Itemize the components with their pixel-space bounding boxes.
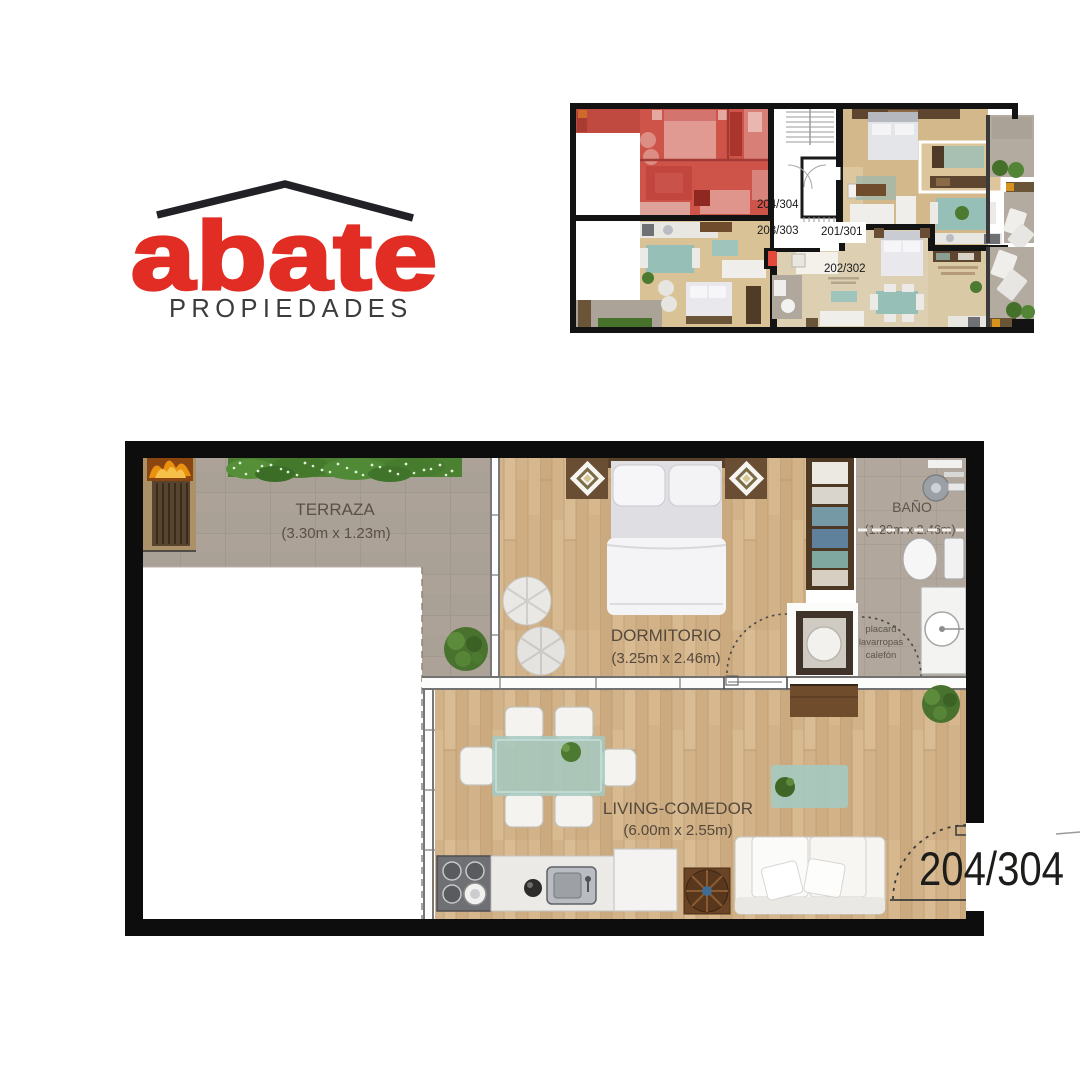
svg-text:(3.30m x 1.23m): (3.30m x 1.23m) [281, 525, 390, 542]
svg-text:(3.25m x 2.46m): (3.25m x 2.46m) [611, 650, 720, 667]
svg-text:calefón: calefón [866, 650, 897, 661]
svg-text:DORMITORIO: DORMITORIO [611, 626, 721, 645]
svg-text:202/302: 202/302 [824, 263, 866, 275]
svg-text:LIVING-COMEDOR: LIVING-COMEDOR [603, 799, 753, 818]
svg-text:(6.00m x 2.55m): (6.00m x 2.55m) [623, 822, 732, 839]
svg-text:placard: placard [865, 624, 896, 635]
svg-text:201/301: 201/301 [821, 226, 863, 238]
svg-text:204/304: 204/304 [757, 199, 799, 211]
svg-text:BAÑO: BAÑO [892, 499, 932, 515]
svg-text:203/303: 203/303 [757, 225, 799, 237]
svg-text:lavarropas: lavarropas [859, 637, 904, 648]
svg-text:204/304: 204/304 [919, 842, 1064, 895]
svg-text:TERRAZA: TERRAZA [295, 500, 375, 519]
